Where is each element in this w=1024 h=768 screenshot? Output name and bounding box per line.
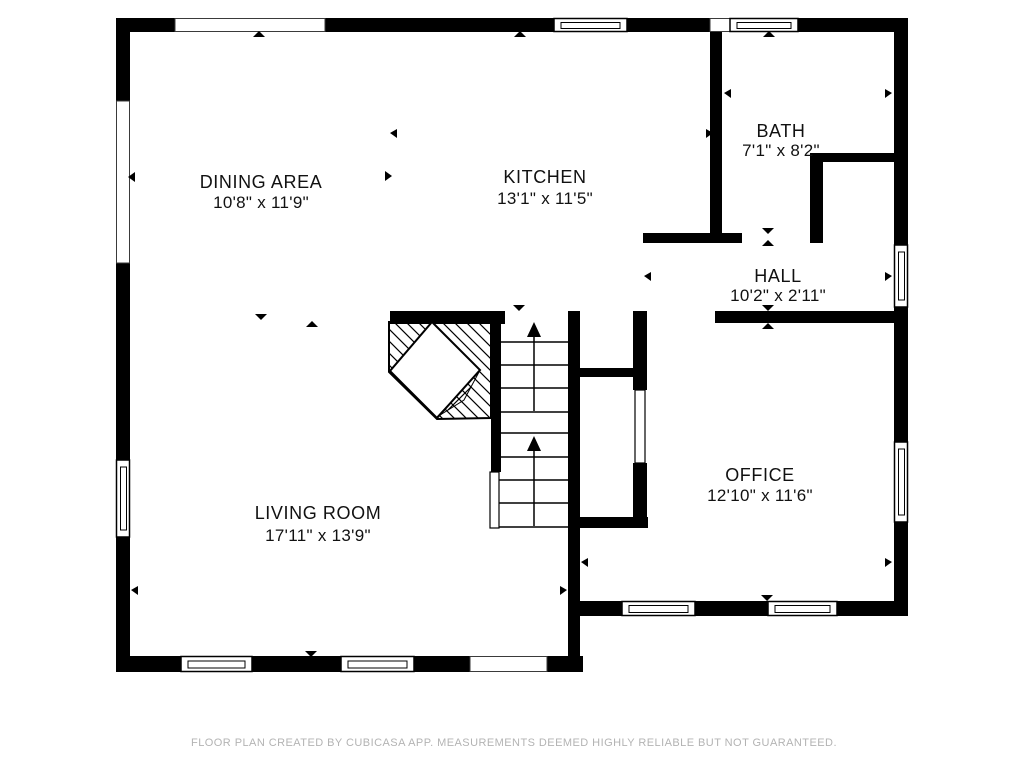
marker-left-icon — [724, 89, 731, 98]
marker-left-icon — [581, 558, 588, 567]
under-stair-void — [389, 322, 491, 419]
window — [768, 602, 837, 616]
wall-segment — [325, 18, 554, 32]
wall-segment — [837, 601, 908, 616]
marker-up-icon — [306, 321, 318, 327]
marker-left-icon — [390, 129, 397, 138]
opening — [710, 19, 730, 32]
marker-left-icon — [644, 272, 651, 281]
wall-closet-divider — [580, 368, 637, 377]
room-label-office: OFFICE 12'10" x 11'6" — [707, 465, 813, 505]
room-label-dining-area: DINING AREA 10'8" x 11'9" — [200, 172, 323, 212]
room-name: BATH — [756, 121, 805, 141]
marker-right-icon — [885, 89, 892, 98]
wall-segment — [627, 18, 710, 32]
wall-segment — [414, 656, 470, 672]
window — [895, 442, 908, 522]
marker-left-icon — [131, 586, 138, 595]
wall-segment — [798, 18, 908, 32]
room-name: DINING AREA — [200, 172, 323, 192]
wall-segment — [568, 311, 580, 672]
room-dimensions: 7'1" x 8'2" — [742, 141, 820, 160]
door — [635, 390, 645, 463]
window — [730, 19, 798, 32]
room-dimensions: 10'8" x 11'9" — [213, 193, 309, 212]
door — [490, 472, 499, 528]
stairs-up-arrow-icon — [527, 322, 541, 411]
room-label-hall: HALL 10'2" x 2'11" — [730, 266, 826, 305]
opening — [117, 101, 130, 263]
wall-stairs-left — [491, 311, 501, 472]
footer-disclaimer: FLOOR PLAN CREATED BY CUBICASA APP. MEAS… — [191, 737, 837, 749]
window — [622, 602, 695, 616]
wall-segment — [116, 18, 130, 101]
marker-right-icon — [560, 586, 567, 595]
windows — [117, 19, 908, 672]
room-dimensions: 17'11" x 13'9" — [265, 526, 371, 545]
room-dimensions: 10'2" x 2'11" — [730, 286, 826, 305]
wall-hall-bottom — [715, 311, 894, 323]
floor-plan-page: DINING AREA 10'8" x 11'9" KITCHEN 13'1" … — [0, 0, 1024, 768]
wall-segment — [252, 656, 341, 672]
wall-bath-nook-vertical — [810, 153, 823, 243]
marker-down-icon — [255, 314, 267, 320]
wall-closet-right-upper — [633, 311, 647, 390]
window — [895, 245, 908, 307]
marker-up-icon — [762, 240, 774, 246]
opening — [175, 19, 325, 32]
exterior-walls — [116, 18, 908, 672]
room-name: OFFICE — [725, 465, 795, 485]
marker-down-icon — [762, 228, 774, 234]
window — [341, 657, 414, 672]
window — [117, 460, 130, 537]
marker-down-icon — [513, 305, 525, 311]
doors — [490, 390, 645, 528]
marker-down-icon — [762, 305, 774, 311]
marker-right-icon — [885, 558, 892, 567]
room-name: LIVING ROOM — [255, 503, 382, 523]
wall-segment — [894, 307, 908, 442]
marker-up-icon — [762, 323, 774, 329]
opening — [470, 657, 547, 672]
wall-bath-nook-horizontal — [823, 153, 894, 162]
room-label-kitchen: KITCHEN 13'1" x 11'5" — [497, 167, 593, 208]
room-label-bath: BATH 7'1" x 8'2" — [742, 121, 820, 160]
room-dimensions: 13'1" x 11'5" — [497, 189, 593, 208]
wall-segment — [695, 601, 768, 616]
room-label-living-room: LIVING ROOM 17'11" x 13'9" — [255, 503, 382, 545]
room-labels: DINING AREA 10'8" x 11'9" KITCHEN 13'1" … — [200, 121, 826, 545]
wall-closet-bottom — [568, 517, 648, 528]
wall-segment — [116, 656, 181, 672]
window — [554, 19, 627, 32]
staircase — [499, 322, 568, 527]
wall-segment — [116, 263, 130, 460]
marker-right-icon — [885, 272, 892, 281]
stairs-up-arrow-icon — [527, 436, 541, 526]
wall-bath-bottom — [643, 233, 742, 243]
room-dimensions: 12'10" x 11'6" — [707, 486, 813, 505]
room-name: KITCHEN — [503, 167, 586, 187]
floor-plan-drawing: DINING AREA 10'8" x 11'9" KITCHEN 13'1" … — [0, 0, 1024, 768]
wall-segment — [116, 537, 130, 672]
marker-right-icon — [385, 171, 392, 181]
window — [181, 657, 252, 672]
marker-down-icon — [761, 595, 773, 601]
room-name: HALL — [754, 266, 801, 286]
wall-segment — [894, 18, 908, 245]
